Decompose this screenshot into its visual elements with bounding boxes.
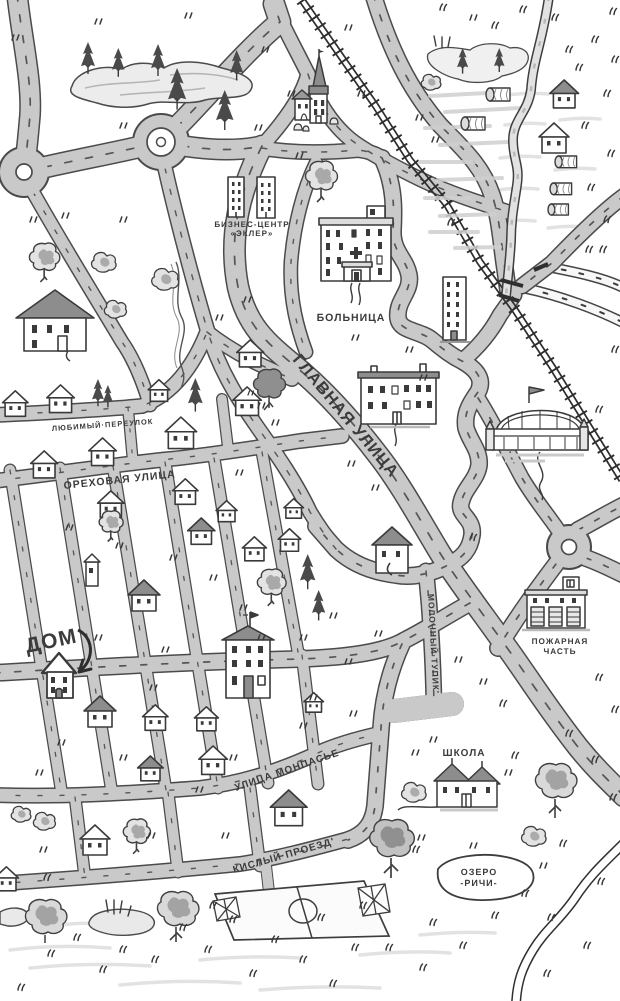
svg-text:ЧАСТЬ: ЧАСТЬ bbox=[543, 647, 576, 656]
svg-text:ШКОЛА: ШКОЛА bbox=[443, 748, 486, 759]
svg-text:БОЛЬНИЦА: БОЛЬНИЦА bbox=[317, 312, 386, 324]
svg-text:ПОЖАРНАЯ: ПОЖАРНАЯ bbox=[532, 637, 589, 646]
svg-text:ОЗЕРО: ОЗЕРО bbox=[461, 867, 498, 877]
svg-text:«ЭКЛЕР»: «ЭКЛЕР» bbox=[231, 229, 274, 238]
svg-text:БИЗНЕС-ЦЕНТР: БИЗНЕС-ЦЕНТР bbox=[214, 220, 289, 229]
svg-text:-РИЧИ-: -РИЧИ- bbox=[460, 878, 497, 888]
